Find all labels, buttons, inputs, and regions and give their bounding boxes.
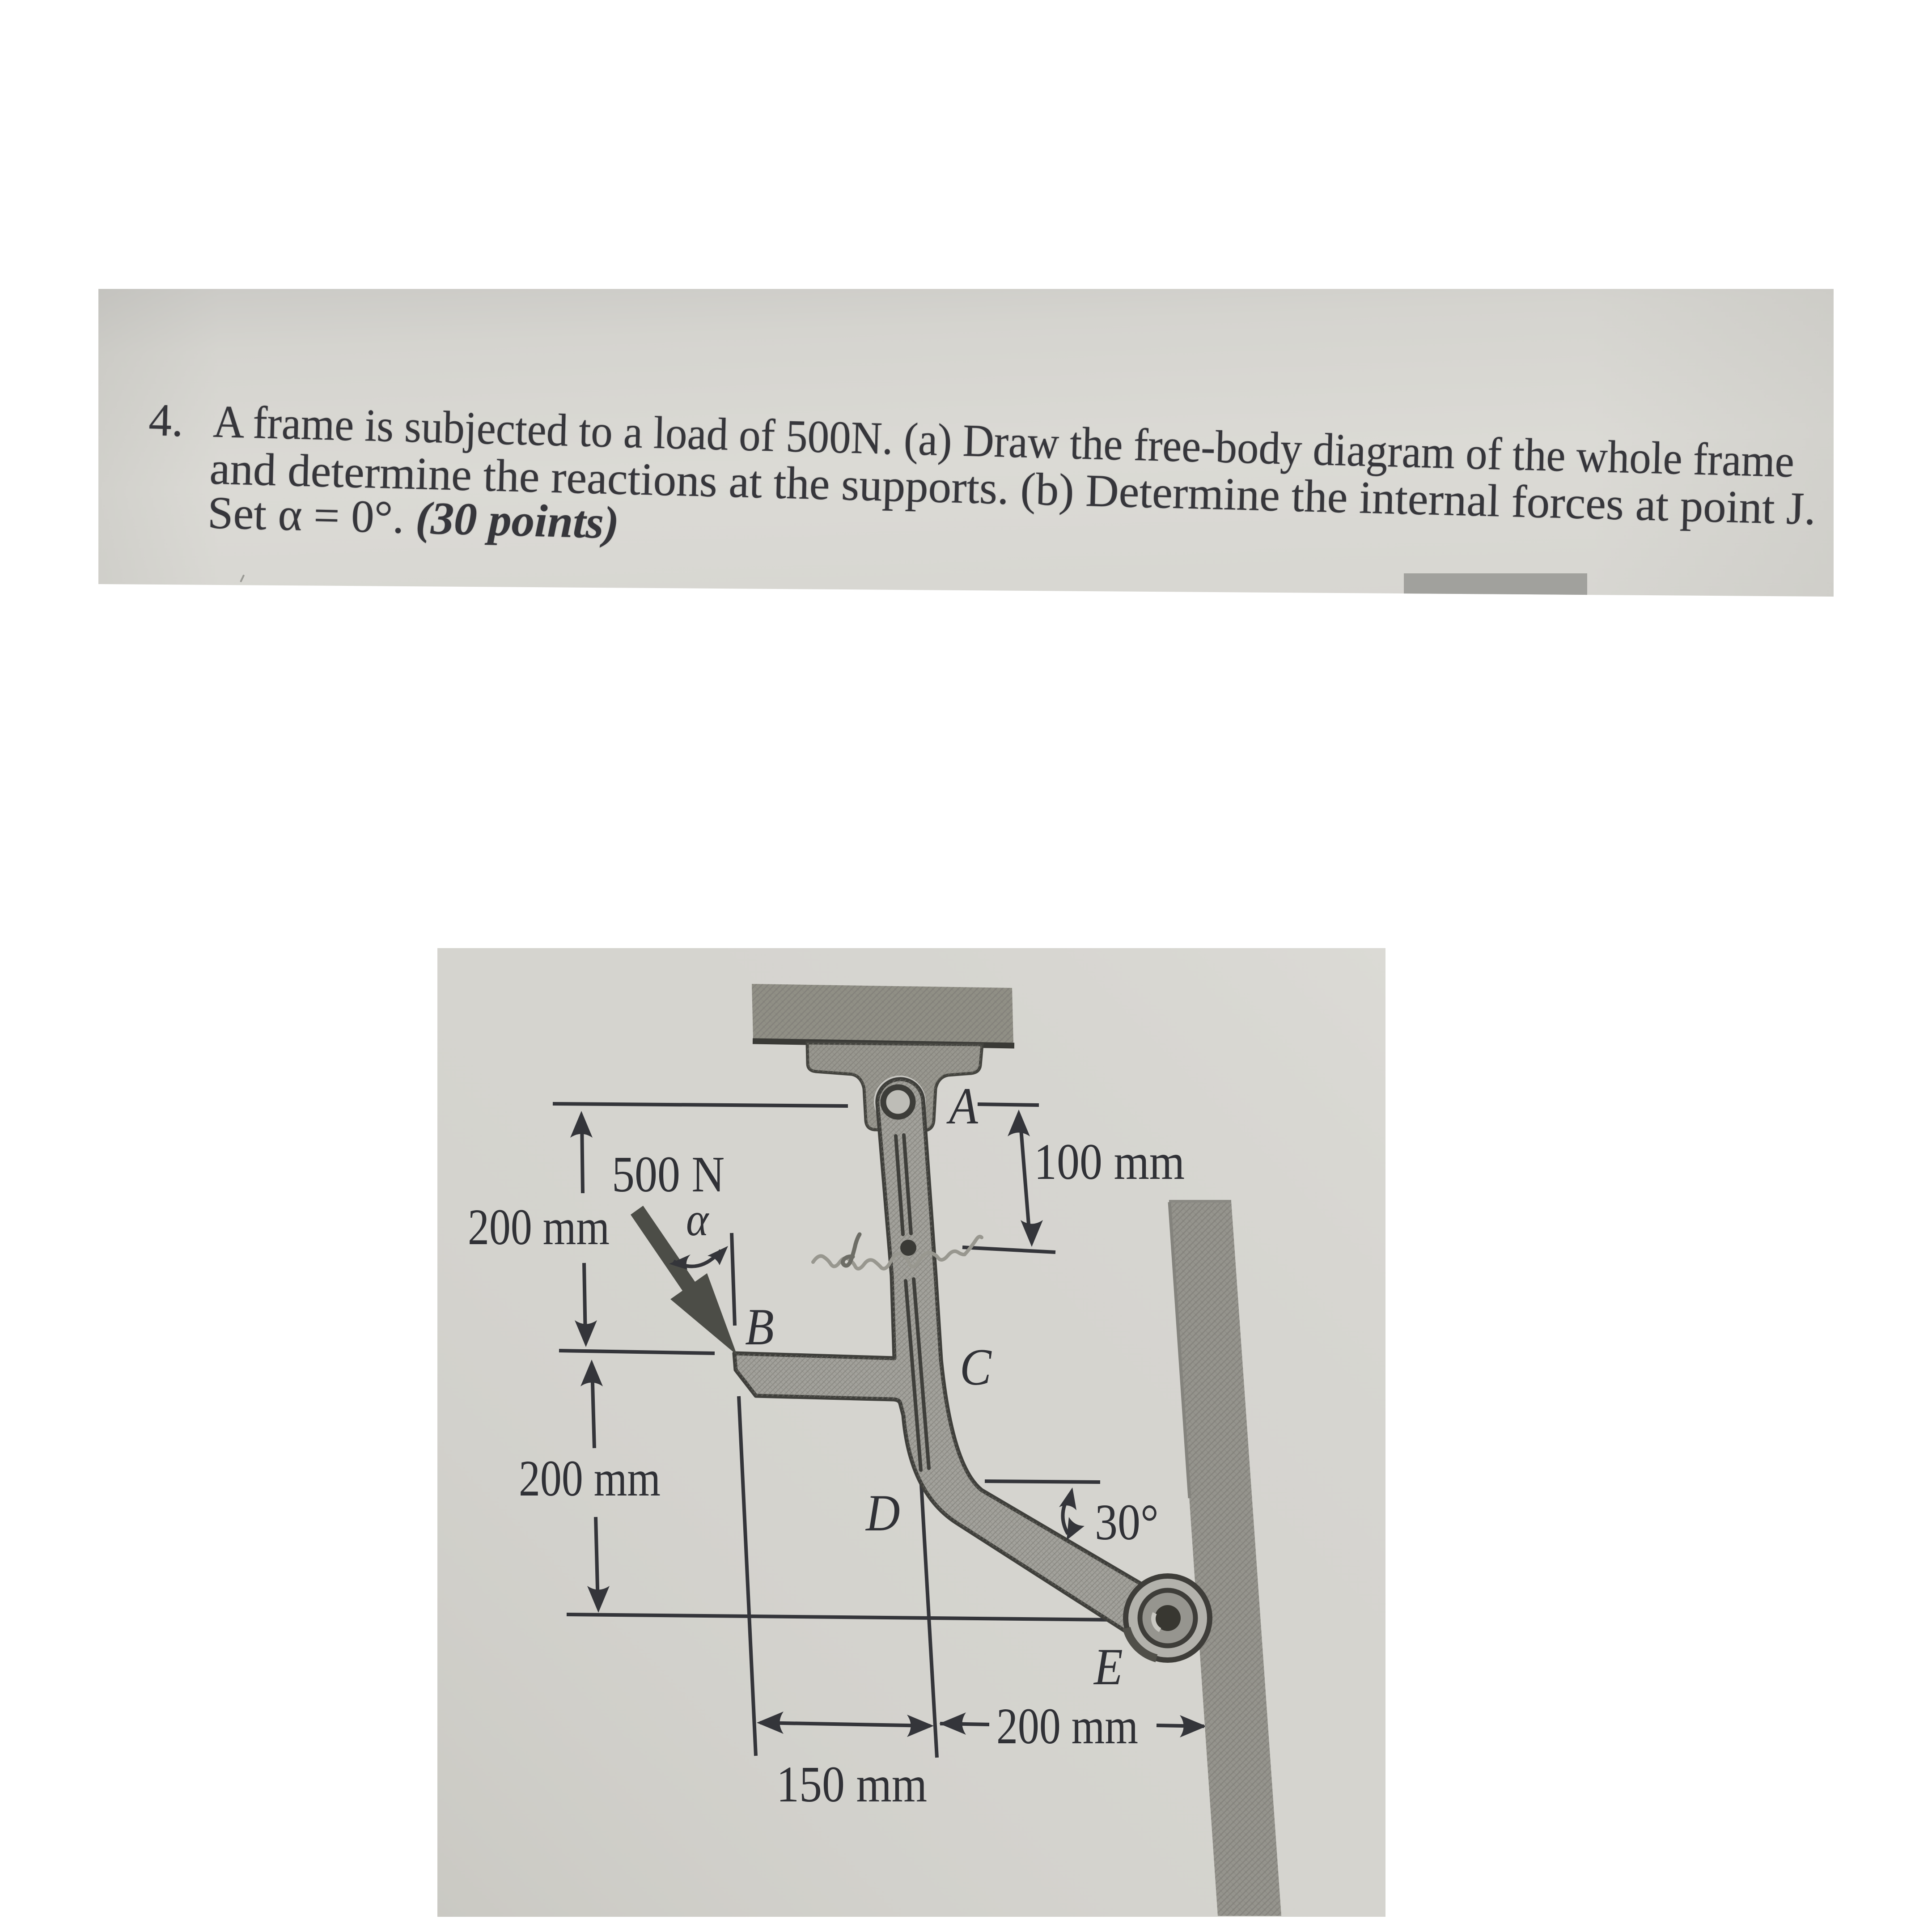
svg-text:A: A	[946, 1077, 978, 1135]
svg-text:D: D	[865, 1484, 900, 1542]
svg-text:B: B	[745, 1298, 774, 1356]
svg-text:E: E	[1093, 1638, 1123, 1696]
svg-text:200 mm: 200 mm	[996, 1698, 1138, 1754]
svg-text:100 mm: 100 mm	[1034, 1134, 1185, 1191]
svg-text:C: C	[960, 1339, 992, 1396]
svg-text:500 N: 500 N	[612, 1147, 724, 1203]
svg-text:200 mm: 200 mm	[468, 1199, 610, 1255]
svg-text:200 mm: 200 mm	[519, 1450, 661, 1507]
svg-text:30°: 30°	[1095, 1495, 1159, 1551]
svg-text:150 mm: 150 mm	[776, 1757, 927, 1813]
